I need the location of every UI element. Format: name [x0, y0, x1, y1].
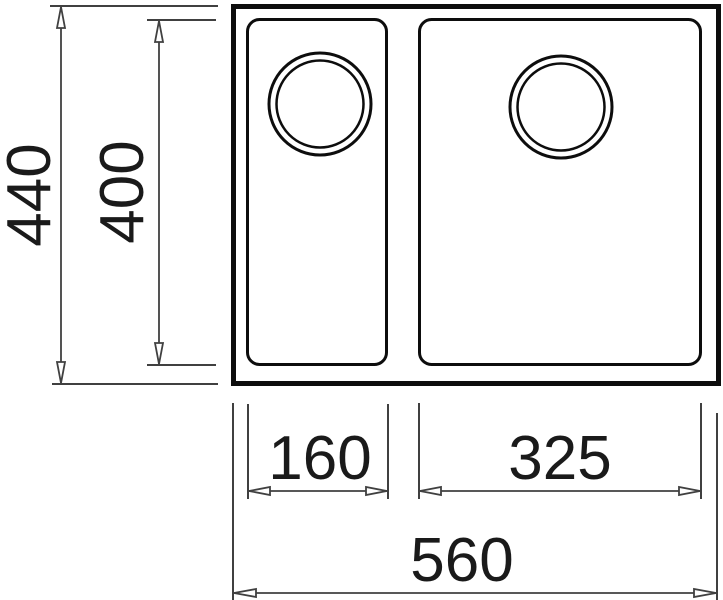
- dim-label-left-bowl-width: 160: [268, 424, 371, 493]
- right-drain-inner-ring: [518, 64, 605, 151]
- dim-label-overall-width: 560: [410, 526, 513, 595]
- dim-label-bowl-height: 400: [88, 140, 157, 243]
- dimension-left-bowl-width: 160: [248, 404, 388, 499]
- arrow-right-icon: [679, 487, 700, 495]
- arrow-left-icon: [249, 487, 270, 495]
- drawing-canvas: 440 400 160 325: [0, 0, 723, 600]
- sink-body: [234, 7, 719, 384]
- dim-label-right-bowl-width: 325: [508, 424, 611, 493]
- right-drain-outer-ring: [510, 56, 612, 158]
- left-drain-outer-ring: [269, 53, 371, 155]
- dim-label-overall-height: 440: [0, 143, 64, 246]
- arrow-up-icon: [155, 21, 163, 42]
- dimension-right-bowl-width: 325: [419, 403, 701, 499]
- left-bowl: [248, 20, 387, 365]
- arrow-up-icon: [57, 7, 65, 28]
- dimension-bowl-height: 400: [88, 20, 216, 365]
- right-bowl: [420, 20, 701, 365]
- arrow-right-icon: [694, 589, 716, 597]
- arrow-down-icon: [57, 362, 65, 383]
- arrow-left-icon: [234, 589, 256, 597]
- sink-technical-drawing: 440 400 160 325: [0, 0, 723, 600]
- arrow-down-icon: [155, 343, 163, 364]
- arrow-left-icon: [420, 487, 441, 495]
- left-drain-inner-ring: [277, 61, 364, 148]
